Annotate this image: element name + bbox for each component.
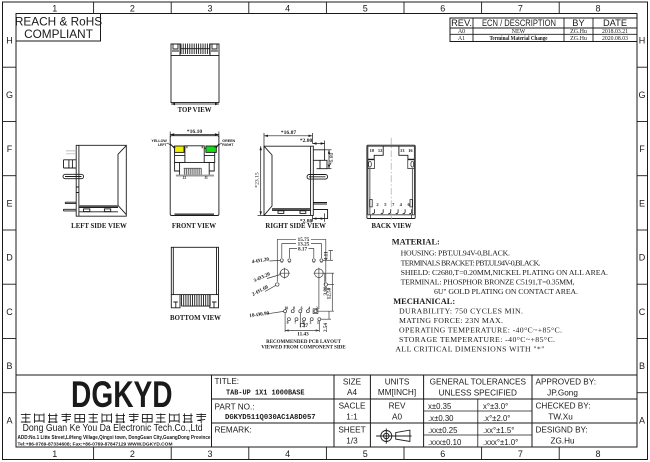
svg-text:GENERAL TOLERANCES: GENERAL TOLERANCES: [430, 378, 527, 387]
svg-text:A: A: [639, 415, 645, 425]
svg-text:1:1: 1:1: [346, 413, 358, 422]
svg-text:5: 5: [302, 321, 304, 325]
svg-text:2: 2: [130, 449, 135, 459]
svg-text:D: D: [639, 253, 646, 263]
svg-text:RIGHT: RIGHT: [222, 143, 234, 147]
svg-text:.xx±0.25: .xx±0.25: [428, 426, 458, 435]
svg-text:Terminal Material Change: Terminal Material Change: [490, 36, 548, 42]
svg-text:E: E: [639, 198, 645, 208]
svg-text:H: H: [639, 36, 646, 46]
svg-text:SHIELD: C2680,T=0.20MM,NICKEL: SHIELD: C2680,T=0.20MM,NICKEL PLATING ON…: [401, 268, 608, 277]
svg-text:4: 4: [285, 4, 290, 14]
svg-text:B: B: [639, 361, 645, 371]
svg-text:6: 6: [440, 4, 445, 14]
svg-text:CHECKED BY:: CHECKED BY:: [536, 402, 591, 411]
svg-text:8: 8: [293, 307, 295, 311]
svg-text:SIZE: SIZE: [343, 378, 362, 387]
svg-text:5: 5: [363, 4, 368, 14]
svg-text:5: 5: [363, 449, 368, 459]
svg-text:1: 1: [317, 321, 319, 325]
svg-text:LEFT SIDE VIEW: LEFT SIDE VIEW: [71, 223, 127, 230]
svg-text:1/3: 1/3: [346, 437, 358, 446]
svg-text:REMARK:: REMARK:: [215, 426, 252, 435]
svg-text:10: 10: [370, 148, 375, 153]
svg-text:3: 3: [309, 321, 311, 325]
svg-text:PART NO.:: PART NO.:: [215, 403, 255, 412]
svg-text:1: 1: [52, 449, 57, 459]
svg-text:7: 7: [294, 321, 296, 325]
svg-text:BACK VIEW: BACK VIEW: [371, 223, 411, 230]
svg-text:F: F: [639, 144, 645, 154]
svg-text:8: 8: [595, 4, 600, 14]
svg-text:BOTTOM VIEW: BOTTOM VIEW: [170, 315, 221, 322]
svg-text:H: H: [6, 36, 13, 46]
svg-text:*6.80: *6.80: [329, 153, 335, 166]
svg-text:4: 4: [308, 307, 310, 311]
svg-text:A0: A0: [458, 29, 465, 35]
svg-text:TITLE:: TITLE:: [215, 377, 240, 386]
svg-text:2.54: 2.54: [323, 323, 329, 332]
svg-text:ALL CRITICAL DIMENSIONS WITH ": ALL CRITICAL DIMENSIONS WITH "*": [395, 345, 544, 354]
svg-text:1: 1: [52, 4, 57, 14]
svg-text:12: 12: [378, 148, 383, 153]
svg-text:*2.80: *2.80: [300, 138, 313, 144]
svg-text:DATE: DATE: [603, 18, 627, 28]
svg-text:*16.87: *16.87: [281, 130, 297, 136]
svg-text:ADD:No.1 Litte Street,LiHeng V: ADD:No.1 Litte Street,LiHeng Village,Qin…: [18, 435, 211, 441]
svg-text:DGKYD511Q030AC1A8D057: DGKYD511Q030AC1A8D057: [225, 414, 316, 422]
svg-text:11.43: 11.43: [297, 332, 309, 338]
svg-text:DESIGND BY:: DESIGND BY:: [536, 426, 588, 435]
svg-text:x±0.35: x±0.35: [428, 402, 452, 411]
svg-text:MATING FORCE: 23N MAX.: MATING FORCE: 23N MAX.: [399, 316, 503, 325]
svg-text:A: A: [6, 415, 12, 425]
svg-text:A0: A0: [392, 413, 402, 422]
svg-text:x°±3.0°: x°±3.0°: [483, 402, 508, 411]
svg-text:8.17: 8.17: [298, 247, 307, 253]
svg-text:BY: BY: [572, 18, 584, 28]
svg-text:B: B: [6, 361, 12, 371]
svg-text:*23.15: *23.15: [254, 172, 260, 188]
svg-text:3: 3: [207, 4, 212, 14]
svg-text:DURABILITY: 750 CYCLES MIN.: DURABILITY: 750 CYCLES MIN.: [399, 307, 523, 316]
svg-text:A4: A4: [347, 388, 357, 397]
svg-text:ECN / DESCRIPTION: ECN / DESCRIPTION: [482, 18, 556, 28]
svg-text:MATERIAL:: MATERIAL:: [392, 238, 440, 247]
svg-text:TERMINALS BRACKET: PBT,UL94V-0: TERMINALS BRACKET: PBT,UL94V-0,BLACK.: [401, 258, 541, 267]
svg-text:G: G: [638, 90, 645, 100]
svg-text:RIGHT SIDE VIEW: RIGHT SIDE VIEW: [265, 223, 326, 230]
svg-text:SACLE: SACLE: [339, 402, 366, 411]
svg-text:6U" GOLD PLATING ON CONTACT AR: 6U" GOLD PLATING ON CONTACT AREA.: [434, 287, 578, 296]
svg-text:2: 2: [130, 4, 135, 14]
svg-text:RECOMMENDED PCB LAYOUT: RECOMMENDED PCB LAYOUT: [266, 340, 341, 345]
svg-text:16: 16: [408, 148, 413, 153]
svg-text:10: 10: [284, 307, 288, 311]
svg-text:STORAGE TEMPERATURE: -40°C~+85: STORAGE TEMPERATURE: -40°C~+85°C.: [399, 335, 555, 344]
svg-text:ZG.Hu: ZG.Hu: [570, 36, 587, 42]
svg-text:TERMINAL: PHOSPHOR BRONZE C519: TERMINAL: PHOSPHOR BRONZE C5191,T=0.35MM…: [401, 278, 575, 287]
svg-text:J1: J1: [204, 176, 208, 180]
svg-text:.xxx±0.10: .xxx±0.10: [428, 438, 462, 447]
svg-text:MM[INCH]: MM[INCH]: [378, 388, 416, 397]
svg-text:HOUSING: PBT,UL94V-0,BLACK.: HOUSING: PBT,UL94V-0,BLACK.: [401, 249, 510, 258]
svg-text:REV.: REV.: [451, 18, 472, 28]
svg-text:7: 7: [518, 449, 523, 459]
svg-text:*16.10: *16.10: [187, 129, 203, 135]
svg-text:J2: J2: [183, 176, 187, 180]
svg-text:Dong Guan Ke You Da Electronic: Dong Guan Ke You Da Electronic Tech.Co.,…: [23, 423, 203, 434]
svg-text:D: D: [6, 253, 13, 263]
svg-text:.x°±2.0°: .x°±2.0°: [483, 414, 510, 423]
svg-text:13: 13: [400, 148, 405, 153]
svg-text:9: 9: [287, 321, 289, 325]
svg-text:LEFT: LEFT: [158, 143, 168, 147]
svg-text:FRONT VIEW: FRONT VIEW: [172, 223, 216, 230]
svg-text:2020.08.03: 2020.08.03: [602, 36, 628, 42]
svg-text:NEW: NEW: [512, 29, 526, 35]
svg-text:JP.Gong: JP.Gong: [547, 389, 578, 398]
svg-text:7: 7: [518, 4, 523, 14]
svg-text:Tel:+86-0769-87334608; Fax:+86: Tel:+86-0769-87334608; Fax:+86-0769-8784…: [18, 442, 173, 448]
svg-text:TAB-UP 1X1 1000BASE: TAB-UP 1X1 1000BASE: [226, 390, 305, 398]
svg-text:1.27: 1.27: [299, 323, 308, 329]
svg-text:4.11: 4.11: [324, 251, 330, 260]
svg-text:OPERATING TEMPERATURE: -40°C~+: OPERATING TEMPERATURE: -40°C~+85°C.: [399, 326, 562, 335]
svg-text:2: 2: [316, 307, 318, 311]
svg-text:F: F: [7, 144, 13, 154]
svg-text:ZG.Hu: ZG.Hu: [570, 29, 587, 35]
svg-text:G: G: [6, 90, 13, 100]
svg-text:E: E: [6, 198, 12, 208]
svg-text:SHEET: SHEET: [338, 426, 365, 435]
svg-text:UNLESS SPECIFIED: UNLESS SPECIFIED: [439, 389, 517, 398]
svg-text:APPROVED BY:: APPROVED BY:: [536, 378, 597, 387]
svg-text:VIEWED FROM COMPONENT SIDE: VIEWED FROM COMPONENT SIDE: [261, 346, 346, 351]
svg-text:4: 4: [285, 449, 290, 459]
svg-text:8: 8: [595, 449, 600, 459]
svg-text:TOP VIEW: TOP VIEW: [178, 107, 212, 114]
svg-text:MECHANICAL:: MECHANICAL:: [393, 297, 455, 306]
svg-text:REV: REV: [389, 402, 406, 411]
svg-text:COMPLIANT: COMPLIANT: [24, 27, 93, 41]
svg-text:6: 6: [301, 307, 303, 311]
svg-text:12.50: 12.50: [327, 287, 333, 299]
svg-text:A1: A1: [458, 36, 465, 42]
svg-text:TW.Xu: TW.Xu: [548, 413, 573, 422]
svg-text:.x±0.30: .x±0.30: [428, 414, 454, 423]
svg-text:UNITS: UNITS: [385, 378, 410, 387]
svg-text:2018.03.21: 2018.03.21: [602, 29, 628, 35]
svg-text:.xx°±1.5°: .xx°±1.5°: [483, 426, 514, 435]
svg-text:C: C: [639, 307, 646, 317]
svg-text:DGKYD: DGKYD: [71, 374, 173, 415]
svg-text:.xxx°±1.0°: .xxx°±1.0°: [483, 438, 518, 447]
svg-text:3: 3: [207, 449, 212, 459]
svg-text:6: 6: [440, 449, 445, 459]
svg-text:C: C: [6, 307, 13, 317]
svg-text:ZG.Hu: ZG.Hu: [550, 437, 575, 446]
